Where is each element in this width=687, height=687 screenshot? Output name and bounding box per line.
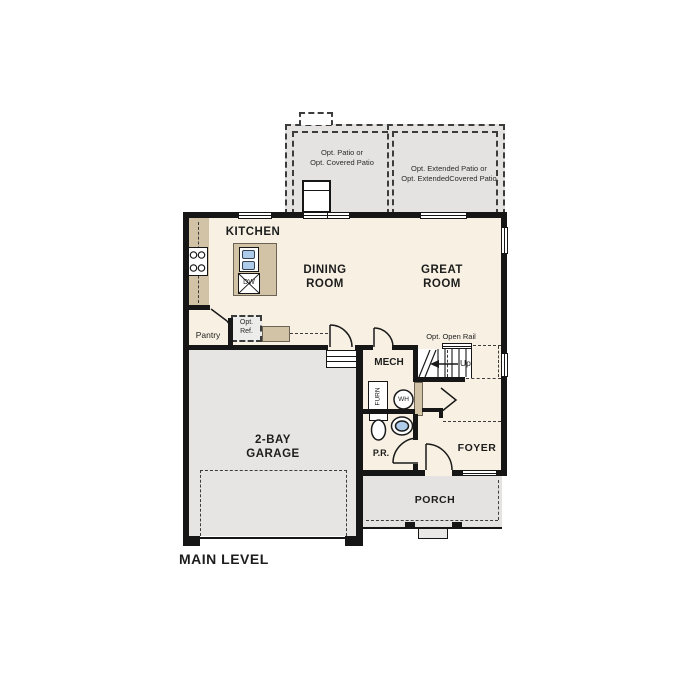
water-heater-label: WH [394, 396, 413, 403]
step-line-1 [327, 356, 357, 357]
open-rail-label: Opt. Open Rail [411, 332, 491, 341]
garage-door-clearance-dashed [200, 470, 347, 536]
patio-divider-dashed-1 [387, 124, 389, 215]
great-line2: ROOM [402, 277, 482, 291]
porch-post-left [405, 522, 415, 529]
dining-line1: DINING [285, 263, 365, 277]
wall-garage-bottom-right [345, 536, 362, 546]
patio-bumpout [299, 112, 333, 125]
main-level-title: MAIN LEVEL [179, 551, 299, 567]
patio-left-line1: Opt. Patio or [290, 148, 394, 158]
open-rail-symbol [442, 343, 472, 349]
sink-basin-top [242, 250, 255, 260]
porch-dashed-right [498, 480, 499, 520]
garage-line2: GARAGE [233, 447, 313, 461]
porch-edge-line [363, 527, 502, 529]
powder-room-label: P.R. [361, 448, 401, 458]
fireplace [302, 180, 331, 213]
garage-line1: 2-BAY [233, 433, 313, 447]
open-rail-center-line [443, 346, 471, 347]
garage-door-line [200, 537, 345, 539]
window-line [421, 215, 466, 216]
stair-center-dashed [447, 350, 448, 377]
wall-pantry-top [183, 305, 210, 310]
wall-left [183, 212, 189, 546]
floor-plan: Opt. Patio or Opt. Covered Patio Opt. Ex… [0, 0, 687, 687]
dining-line2: ROOM [285, 277, 365, 291]
step-line-2 [327, 361, 357, 362]
foyer-label: FOYER [447, 442, 507, 454]
slider-divider [327, 213, 328, 218]
rail-dashed-right [498, 346, 499, 377]
porch-label: PORCH [405, 494, 465, 506]
window-foyer-front [462, 470, 497, 476]
patio-right-label: Opt. Extended Patio or Opt. ExtendedCove… [393, 164, 505, 184]
dishwasher-label: DW [238, 279, 260, 286]
mech-label: MECH [361, 357, 417, 368]
fireplace-inner-line [304, 190, 329, 191]
rail-dashed-top [473, 345, 501, 346]
counter-extension-dashed [290, 333, 328, 334]
wall-pr-right [413, 414, 418, 440]
wall-garage-right [356, 345, 363, 546]
dining-room-label: DINING ROOM [285, 263, 365, 291]
window-line [504, 354, 505, 376]
rail-dashed-bottom [466, 378, 501, 379]
patio-right-line2: Opt. ExtendedCovered Patio [393, 174, 505, 184]
garage-entry-steps [326, 350, 358, 368]
wall-pr-right-stub [413, 464, 418, 470]
pantry-label: Pantry [186, 330, 230, 340]
window-great-room-right-lower [501, 353, 508, 377]
furnace-label: FURN [375, 382, 382, 412]
patio-slider-door [303, 212, 350, 219]
opt-ref-line1: Opt. [231, 318, 262, 327]
window-kitchen [238, 212, 272, 219]
patio-left-line2: Opt. Covered Patio [290, 158, 394, 168]
garage-entry-opening [328, 345, 355, 350]
wall-closet-v [439, 408, 443, 418]
front-door-opening [425, 470, 452, 476]
opt-ref-label: Opt. Ref. [231, 318, 262, 336]
wall-garage-bottom-left [183, 536, 200, 546]
window-line [504, 228, 505, 253]
front-step [418, 528, 448, 539]
wall-mech-pr [360, 409, 415, 414]
window-line [463, 473, 496, 474]
patio-left-label: Opt. Patio or Opt. Covered Patio [290, 148, 394, 168]
porch-dashed-bottom [366, 520, 498, 521]
great-line1: GREAT [402, 263, 482, 277]
porch-post-right [452, 522, 462, 529]
kitchen-counter-right [262, 326, 290, 342]
wall-stair-bottom [413, 377, 465, 382]
window-great-room-rear [420, 212, 467, 219]
window-great-room-right-upper [501, 227, 508, 254]
window-line [239, 215, 271, 216]
kitchen-label: KITCHEN [213, 226, 293, 238]
mech-door-opening [373, 345, 392, 350]
opt-ref-line2: Ref. [231, 327, 262, 336]
range-stove [186, 247, 208, 276]
great-room-label: GREAT ROOM [402, 263, 482, 291]
garage-label: 2-BAY GARAGE [233, 433, 313, 461]
sink-basin-bottom [242, 261, 255, 271]
foyer-dashed-line [443, 421, 501, 422]
up-label: Up [460, 358, 482, 368]
patio-right-line1: Opt. Extended Patio or [393, 164, 505, 174]
